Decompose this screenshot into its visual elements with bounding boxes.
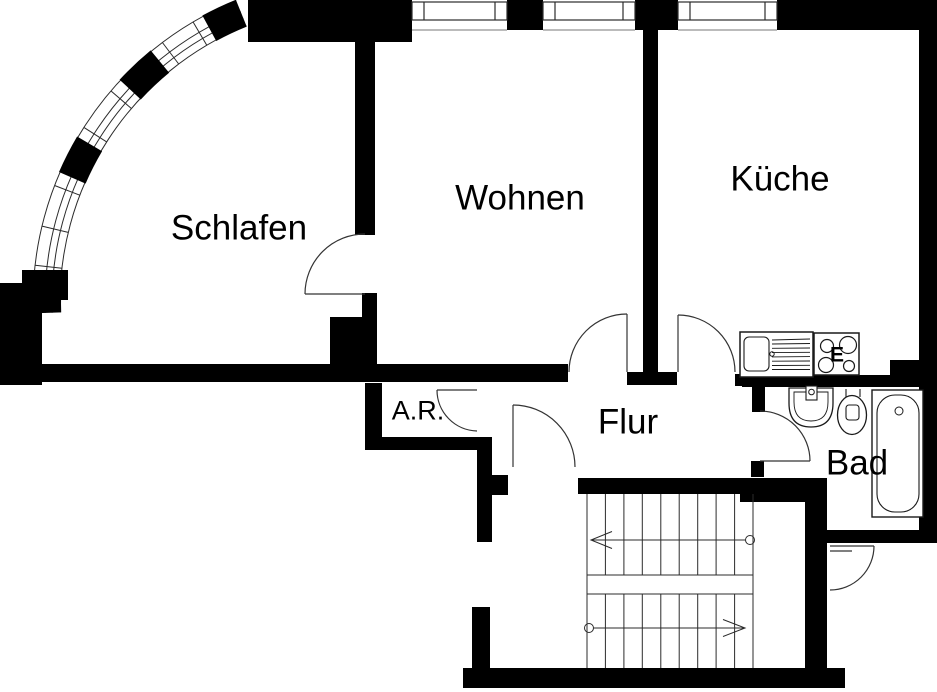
room-label-schlafen: Schlafen <box>171 211 307 246</box>
wohnen-door <box>569 314 627 372</box>
staircase <box>585 494 755 668</box>
room-label-flur: Flur <box>598 405 658 440</box>
bay-window-piers <box>47 13 242 313</box>
top-windows <box>412 2 777 30</box>
neighbor-door <box>830 546 874 590</box>
stair-treads-lower <box>605 594 734 668</box>
down-arrow <box>585 620 746 637</box>
kitchen-sink <box>740 332 813 377</box>
entry-door <box>513 405 575 467</box>
window-3 <box>678 2 777 30</box>
up-arrow <box>591 532 755 549</box>
stair-treads-upper <box>605 494 734 575</box>
toilet <box>838 389 867 435</box>
kueche-door <box>678 315 735 372</box>
floorplan-drawing <box>0 0 937 692</box>
bay-window <box>33 1 246 314</box>
doors <box>305 234 874 590</box>
wash-basin <box>789 386 833 427</box>
room-label-abstellraum: A.R. <box>392 398 445 425</box>
stove-type-label: E <box>830 345 844 366</box>
room-label-kueche: Küche <box>730 162 829 197</box>
window-2 <box>543 2 635 30</box>
room-label-bad: Bad <box>826 446 888 481</box>
window-1 <box>412 2 507 30</box>
room-label-wohnen: Wohnen <box>455 181 585 216</box>
schlafen-door <box>305 234 365 294</box>
floorplan: Schlafen Wohnen Küche Flur Bad A.R. E <box>0 0 937 692</box>
basin-faucet <box>806 386 817 400</box>
